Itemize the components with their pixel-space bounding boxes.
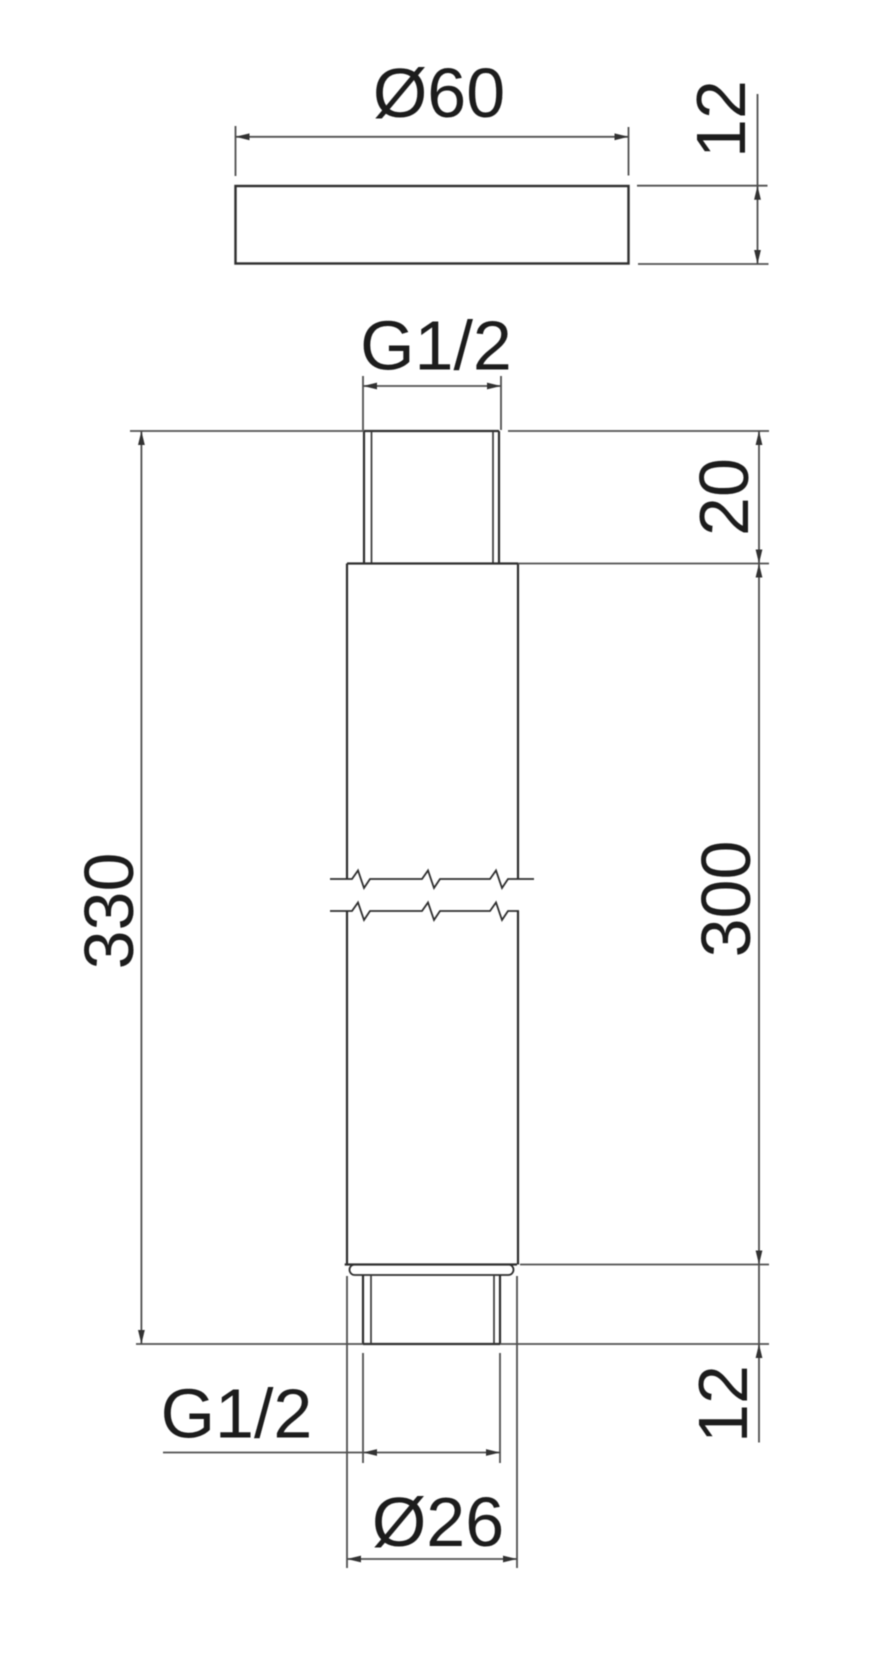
svg-text:330: 330 [70,853,148,970]
svg-text:12: 12 [682,80,760,158]
svg-text:G1/2: G1/2 [360,307,512,385]
svg-text:12: 12 [684,1365,762,1443]
svg-text:300: 300 [687,841,765,958]
svg-text:Ø60: Ø60 [373,54,505,132]
svg-text:20: 20 [685,458,763,536]
svg-text:G1/2: G1/2 [161,1375,313,1453]
svg-text:Ø26: Ø26 [372,1483,504,1561]
